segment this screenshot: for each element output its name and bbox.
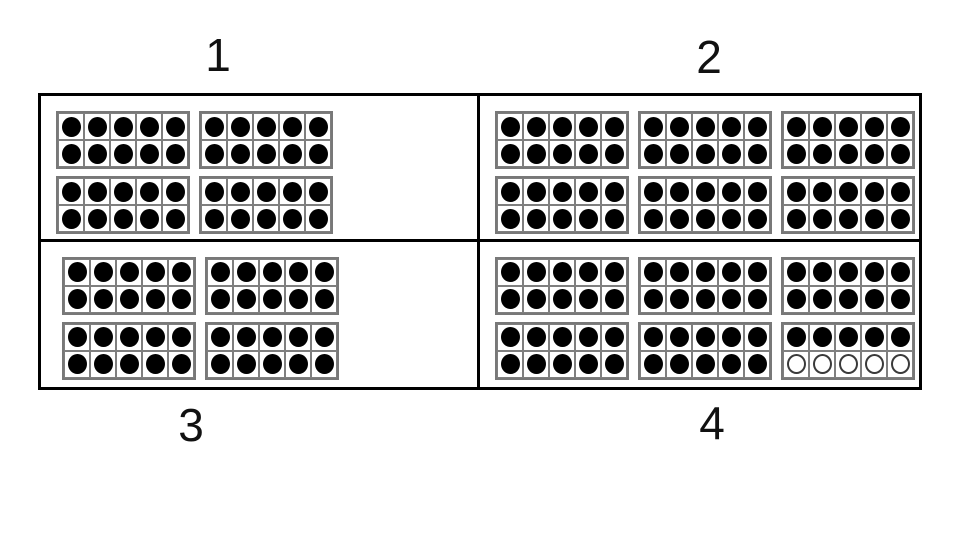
filled-dot-cell xyxy=(497,113,523,140)
filled-dot xyxy=(579,182,598,202)
filled-dot xyxy=(309,182,328,202)
filled-dot-cell xyxy=(90,324,116,351)
filled-dot xyxy=(644,289,663,309)
filled-dot-cell xyxy=(887,286,913,313)
filled-dot-cell xyxy=(497,286,523,313)
filled-dot-cell xyxy=(744,113,770,140)
filled-dot-cell xyxy=(692,140,718,167)
filled-dot xyxy=(257,144,276,164)
filled-dot xyxy=(231,144,250,164)
filled-dot-cell xyxy=(601,140,627,167)
filled-dot-cell xyxy=(227,140,253,167)
filled-dot xyxy=(527,182,546,202)
quadrant-1 xyxy=(41,96,480,242)
filled-dot xyxy=(527,327,546,347)
filled-dot-cell xyxy=(835,259,861,286)
filled-dot-cell xyxy=(549,178,575,205)
filled-dot-cell xyxy=(58,205,84,232)
filled-dot xyxy=(605,289,624,309)
filled-dot-cell xyxy=(84,113,110,140)
filled-dot-cell xyxy=(718,140,744,167)
filled-dot-cell xyxy=(744,140,770,167)
filled-dot xyxy=(813,144,832,164)
filled-dot xyxy=(891,327,910,347)
filled-dot xyxy=(891,144,910,164)
filled-dot-cell xyxy=(110,205,136,232)
ten-frame xyxy=(495,257,629,315)
filled-dot-cell xyxy=(601,178,627,205)
filled-dot xyxy=(166,144,185,164)
filled-dot xyxy=(237,289,256,309)
filled-dot-cell xyxy=(666,140,692,167)
filled-dot xyxy=(553,354,572,374)
filled-dot xyxy=(644,209,663,229)
ten-frame xyxy=(638,257,772,315)
filled-dot-cell xyxy=(809,140,835,167)
filled-dot-cell xyxy=(835,113,861,140)
ten-frame xyxy=(62,257,196,315)
filled-dot xyxy=(289,289,308,309)
filled-dot-cell xyxy=(666,286,692,313)
filled-dot-cell xyxy=(640,178,666,205)
filled-dot xyxy=(696,289,715,309)
filled-dot xyxy=(283,182,302,202)
filled-dot xyxy=(865,182,884,202)
filled-dot xyxy=(787,182,806,202)
filled-dot xyxy=(263,354,282,374)
filled-dot xyxy=(289,354,308,374)
ten-frame xyxy=(495,322,629,380)
filled-dot-cell xyxy=(666,205,692,232)
filled-dot-cell xyxy=(523,324,549,351)
filled-dot-cell xyxy=(744,351,770,378)
filled-dot-cell xyxy=(601,351,627,378)
filled-dot xyxy=(283,117,302,137)
filled-dot xyxy=(237,327,256,347)
filled-dot-cell xyxy=(201,178,227,205)
filled-dot-cell xyxy=(718,178,744,205)
filled-dot-cell xyxy=(58,140,84,167)
filled-dot xyxy=(257,117,276,137)
filled-dot xyxy=(813,262,832,282)
filled-dot xyxy=(205,209,224,229)
filled-dot-cell xyxy=(253,178,279,205)
filled-dot-cell xyxy=(861,324,887,351)
filled-dot xyxy=(211,289,230,309)
filled-dot xyxy=(172,327,191,347)
filled-dot xyxy=(315,262,334,282)
filled-dot-cell xyxy=(549,351,575,378)
filled-dot xyxy=(172,262,191,282)
filled-dot xyxy=(605,209,624,229)
filled-dot-cell xyxy=(640,140,666,167)
filled-dot-cell xyxy=(227,113,253,140)
filled-dot xyxy=(501,209,520,229)
filled-dot xyxy=(283,209,302,229)
filled-dot-cell xyxy=(666,113,692,140)
filled-dot xyxy=(237,354,256,374)
filled-dot xyxy=(605,262,624,282)
filled-dot xyxy=(748,182,767,202)
ten-frame xyxy=(56,176,190,234)
filled-dot xyxy=(670,144,689,164)
filled-dot xyxy=(501,182,520,202)
filled-dot-cell xyxy=(783,205,809,232)
filled-dot xyxy=(644,354,663,374)
filled-dot xyxy=(94,289,113,309)
filled-dot-cell xyxy=(523,140,549,167)
filled-dot xyxy=(88,209,107,229)
filled-dot xyxy=(114,144,133,164)
filled-dot-cell xyxy=(575,140,601,167)
filled-dot-cell xyxy=(861,113,887,140)
filled-dot-cell xyxy=(718,113,744,140)
filled-dot-cell xyxy=(497,259,523,286)
filled-dot-cell xyxy=(259,286,285,313)
ten-frame xyxy=(781,257,915,315)
filled-dot xyxy=(140,117,159,137)
filled-dot xyxy=(146,327,165,347)
filled-dot-cell xyxy=(640,205,666,232)
empty-dot xyxy=(839,354,858,374)
filled-dot-cell xyxy=(744,286,770,313)
filled-dot xyxy=(527,289,546,309)
filled-dot-cell xyxy=(110,140,136,167)
filled-dot xyxy=(722,209,741,229)
quadrant-4 xyxy=(480,242,919,388)
ten-frame xyxy=(56,111,190,169)
filled-dot-cell xyxy=(90,351,116,378)
filled-dot xyxy=(263,262,282,282)
filled-dot xyxy=(813,327,832,347)
filled-dot xyxy=(231,182,250,202)
filled-dot xyxy=(120,289,139,309)
filled-dot xyxy=(787,327,806,347)
filled-dot xyxy=(62,144,81,164)
filled-dot xyxy=(787,262,806,282)
filled-dot-cell xyxy=(640,113,666,140)
filled-dot xyxy=(813,117,832,137)
filled-dot xyxy=(579,209,598,229)
filled-dot xyxy=(289,262,308,282)
filled-dot-cell xyxy=(835,324,861,351)
filled-dot xyxy=(68,354,87,374)
filled-dot xyxy=(527,262,546,282)
filled-dot-cell xyxy=(311,324,337,351)
filled-dot-cell xyxy=(783,140,809,167)
filled-dot-cell xyxy=(110,178,136,205)
filled-dot xyxy=(237,262,256,282)
filled-dot xyxy=(120,354,139,374)
filled-dot xyxy=(315,289,334,309)
filled-dot-cell xyxy=(64,351,90,378)
filled-dot xyxy=(114,182,133,202)
filled-dot xyxy=(231,117,250,137)
filled-dot-cell xyxy=(116,351,142,378)
filled-dot-cell xyxy=(233,351,259,378)
filled-dot-cell xyxy=(835,140,861,167)
filled-dot-cell xyxy=(692,113,718,140)
filled-dot-cell xyxy=(64,324,90,351)
filled-dot-cell xyxy=(744,178,770,205)
filled-dot-cell xyxy=(285,286,311,313)
filled-dot xyxy=(605,117,624,137)
empty-dot-cell xyxy=(861,351,887,378)
filled-dot-cell xyxy=(311,259,337,286)
filled-dot-cell xyxy=(640,351,666,378)
filled-dot-cell xyxy=(259,351,285,378)
ten-frame xyxy=(638,322,772,380)
ten-frame xyxy=(205,322,339,380)
filled-dot xyxy=(839,117,858,137)
filled-dot-cell xyxy=(305,178,331,205)
filled-dot-cell xyxy=(666,351,692,378)
filled-dot-cell xyxy=(575,113,601,140)
filled-dot-cell xyxy=(207,351,233,378)
filled-dot xyxy=(865,327,884,347)
filled-dot-cell xyxy=(744,324,770,351)
filled-dot-cell xyxy=(90,259,116,286)
ten-frame xyxy=(781,176,915,234)
filled-dot-cell xyxy=(887,113,913,140)
filled-dot-cell xyxy=(497,351,523,378)
filled-dot-cell xyxy=(58,113,84,140)
filled-dot xyxy=(205,182,224,202)
filled-dot xyxy=(748,289,767,309)
filled-dot xyxy=(231,209,250,229)
filled-dot xyxy=(787,289,806,309)
filled-dot-cell xyxy=(142,351,168,378)
filled-dot xyxy=(670,262,689,282)
empty-dot xyxy=(865,354,884,374)
filled-dot-cell xyxy=(259,324,285,351)
ten-frame xyxy=(638,176,772,234)
filled-dot xyxy=(839,327,858,347)
filled-dot xyxy=(787,117,806,137)
filled-dot xyxy=(722,354,741,374)
filled-dot xyxy=(865,209,884,229)
filled-dot-cell xyxy=(887,205,913,232)
filled-dot-cell xyxy=(207,324,233,351)
filled-dot xyxy=(68,327,87,347)
filled-dot xyxy=(696,327,715,347)
filled-dot xyxy=(670,117,689,137)
filled-dot xyxy=(166,209,185,229)
filled-dot-cell xyxy=(601,324,627,351)
filled-dot-cell xyxy=(575,324,601,351)
filled-dot xyxy=(696,144,715,164)
filled-dot xyxy=(644,327,663,347)
filled-dot xyxy=(722,289,741,309)
filled-dot-cell xyxy=(575,205,601,232)
filled-dot-cell xyxy=(305,140,331,167)
ten-frame xyxy=(781,322,915,380)
quadrant-4-label: 4 xyxy=(699,400,725,446)
filled-dot xyxy=(88,117,107,137)
filled-dot-cell xyxy=(168,259,194,286)
filled-dot xyxy=(166,117,185,137)
filled-dot-cell xyxy=(640,286,666,313)
ten-frame xyxy=(781,111,915,169)
filled-dot xyxy=(748,209,767,229)
filled-dot-cell xyxy=(168,286,194,313)
filled-dot-cell xyxy=(575,286,601,313)
filled-dot-cell xyxy=(207,286,233,313)
filled-dot xyxy=(146,289,165,309)
empty-dot xyxy=(787,354,806,374)
filled-dot xyxy=(670,327,689,347)
filled-dot xyxy=(605,327,624,347)
filled-dot-cell xyxy=(259,259,285,286)
filled-dot xyxy=(527,354,546,374)
filled-dot xyxy=(865,144,884,164)
filled-dot xyxy=(205,117,224,137)
filled-dot-cell xyxy=(666,324,692,351)
filled-dot xyxy=(813,289,832,309)
filled-dot-cell xyxy=(809,178,835,205)
filled-dot-cell xyxy=(90,286,116,313)
filled-dot-cell xyxy=(809,286,835,313)
filled-dot xyxy=(891,182,910,202)
filled-dot xyxy=(748,327,767,347)
ten-frame xyxy=(199,111,333,169)
filled-dot xyxy=(501,327,520,347)
filled-dot-cell xyxy=(692,286,718,313)
filled-dot-cell xyxy=(692,205,718,232)
filled-dot xyxy=(579,354,598,374)
filled-dot xyxy=(257,209,276,229)
filled-dot-cell xyxy=(601,113,627,140)
filled-dot xyxy=(579,117,598,137)
filled-dot-cell xyxy=(640,324,666,351)
filled-dot xyxy=(696,117,715,137)
filled-dot xyxy=(670,289,689,309)
filled-dot-cell xyxy=(549,205,575,232)
filled-dot-cell xyxy=(744,259,770,286)
filled-dot xyxy=(722,327,741,347)
filled-dot-cell xyxy=(233,286,259,313)
filled-dot xyxy=(68,262,87,282)
filled-dot xyxy=(813,182,832,202)
filled-dot-cell xyxy=(168,324,194,351)
filled-dot xyxy=(283,144,302,164)
filled-dot xyxy=(696,262,715,282)
filled-dot-cell xyxy=(861,259,887,286)
worksheet-canvas: 1 2 3 4 xyxy=(0,0,960,540)
filled-dot xyxy=(146,262,165,282)
filled-dot-cell xyxy=(549,140,575,167)
filled-dot xyxy=(644,182,663,202)
filled-dot-cell xyxy=(692,259,718,286)
filled-dot-cell xyxy=(233,324,259,351)
filled-dot xyxy=(140,144,159,164)
filled-dot xyxy=(114,117,133,137)
filled-dot xyxy=(839,209,858,229)
filled-dot xyxy=(166,182,185,202)
filled-dot-cell xyxy=(305,113,331,140)
filled-dot xyxy=(68,289,87,309)
filled-dot xyxy=(865,289,884,309)
filled-dot xyxy=(501,262,520,282)
filled-dot xyxy=(722,117,741,137)
filled-dot-cell xyxy=(523,259,549,286)
filled-dot-cell xyxy=(692,351,718,378)
filled-dot-cell xyxy=(253,205,279,232)
filled-dot-cell xyxy=(116,324,142,351)
filled-dot xyxy=(748,144,767,164)
filled-dot xyxy=(94,262,113,282)
filled-dot-cell xyxy=(279,113,305,140)
empty-dot-cell xyxy=(835,351,861,378)
filled-dot xyxy=(579,144,598,164)
filled-dot xyxy=(670,354,689,374)
filled-dot-cell xyxy=(718,324,744,351)
filled-dot-cell xyxy=(783,259,809,286)
filled-dot-cell xyxy=(835,178,861,205)
filled-dot xyxy=(722,144,741,164)
filled-dot-cell xyxy=(640,259,666,286)
filled-dot-cell xyxy=(207,259,233,286)
filled-dot xyxy=(172,289,191,309)
filled-dot-cell xyxy=(783,286,809,313)
filled-dot-cell xyxy=(861,286,887,313)
filled-dot-cell xyxy=(136,178,162,205)
filled-dot xyxy=(839,262,858,282)
filled-dot-cell xyxy=(201,205,227,232)
filled-dot-cell xyxy=(285,351,311,378)
empty-dot-cell xyxy=(809,351,835,378)
empty-dot-cell xyxy=(783,351,809,378)
filled-dot-cell xyxy=(116,286,142,313)
filled-dot xyxy=(309,117,328,137)
filled-dot xyxy=(527,209,546,229)
filled-dot-cell xyxy=(666,178,692,205)
filled-dot xyxy=(865,117,884,137)
filled-dot-cell xyxy=(201,113,227,140)
empty-dot xyxy=(813,354,832,374)
filled-dot-cell xyxy=(575,178,601,205)
filled-dot-cell xyxy=(783,113,809,140)
filled-dot-cell xyxy=(601,286,627,313)
quadrant-3-label: 3 xyxy=(178,402,204,448)
filled-dot xyxy=(289,327,308,347)
filled-dot xyxy=(670,209,689,229)
filled-dot xyxy=(62,182,81,202)
filled-dot-cell xyxy=(227,178,253,205)
filled-dot xyxy=(748,117,767,137)
filled-dot-cell xyxy=(162,178,188,205)
filled-dot-cell xyxy=(285,324,311,351)
filled-dot-cell xyxy=(168,351,194,378)
filled-dot-cell xyxy=(809,259,835,286)
filled-dot xyxy=(813,209,832,229)
filled-dot xyxy=(211,327,230,347)
filled-dot-cell xyxy=(692,324,718,351)
filled-dot xyxy=(722,262,741,282)
filled-dot xyxy=(257,182,276,202)
filled-dot xyxy=(88,182,107,202)
filled-dot-cell xyxy=(718,205,744,232)
filled-dot-cell xyxy=(279,140,305,167)
filled-dot-cell xyxy=(861,178,887,205)
filled-dot-cell xyxy=(575,259,601,286)
filled-dot-cell xyxy=(601,259,627,286)
filled-dot xyxy=(722,182,741,202)
filled-dot-cell xyxy=(497,140,523,167)
filled-dot-cell xyxy=(692,178,718,205)
filled-dot xyxy=(553,209,572,229)
empty-dot-cell xyxy=(887,351,913,378)
